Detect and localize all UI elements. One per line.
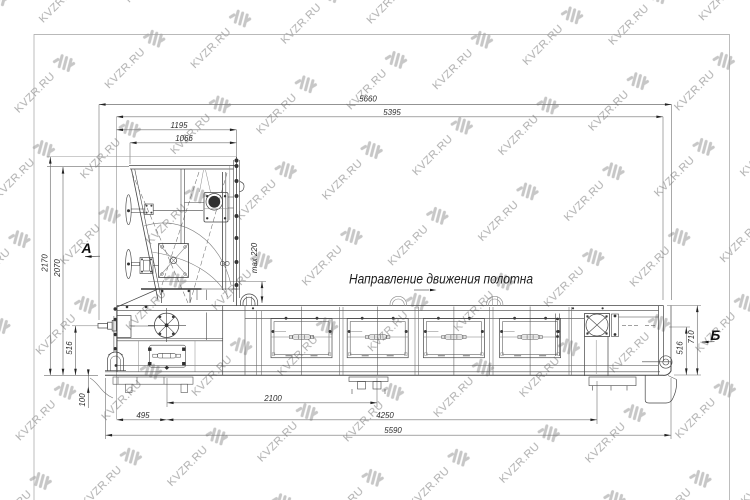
svg-text:Б: Б: [710, 327, 720, 343]
svg-text:2100: 2100: [263, 394, 282, 403]
svg-text:495: 495: [136, 411, 150, 420]
svg-text:1195: 1195: [171, 121, 189, 130]
svg-text:max 220: max 220: [250, 242, 259, 273]
svg-text:516: 516: [65, 341, 74, 355]
svg-text:5660: 5660: [359, 95, 377, 104]
svg-text:4250: 4250: [376, 411, 394, 420]
svg-text:2070: 2070: [53, 259, 62, 278]
svg-text:1066: 1066: [175, 134, 193, 143]
svg-text:710: 710: [687, 330, 696, 344]
svg-text:Направление движения полотна: Направление движения полотна: [349, 272, 533, 287]
svg-text:5590: 5590: [384, 426, 402, 435]
svg-text:100: 100: [78, 393, 87, 407]
svg-text:516: 516: [676, 341, 685, 355]
svg-text:2170: 2170: [41, 254, 50, 273]
svg-text:5395: 5395: [383, 108, 401, 117]
svg-text:А: А: [80, 240, 91, 256]
